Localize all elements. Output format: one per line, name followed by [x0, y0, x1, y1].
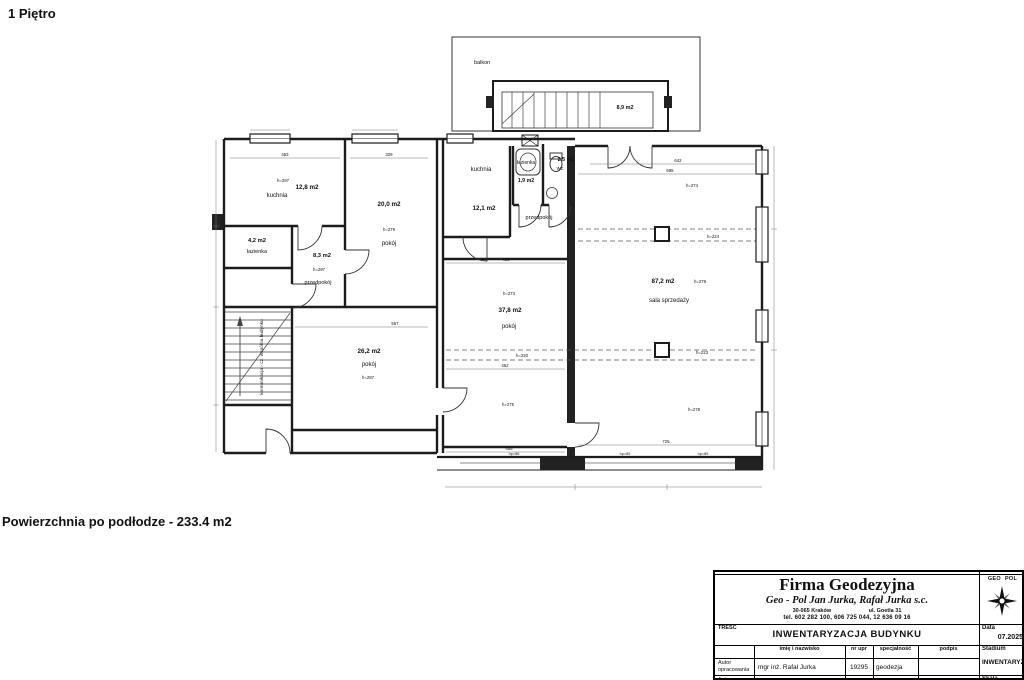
balcony-stairs: [502, 92, 600, 128]
column-header-name: imię i nazwisko: [754, 646, 845, 652]
room-height-pokoj-37-top: h=273: [503, 291, 516, 296]
window-sill-label: hp=85: [620, 452, 631, 456]
logo-text-pol: POL: [1005, 576, 1017, 582]
door-arc: [608, 146, 630, 168]
room-label-przedpokoj-2: przedpokój: [526, 215, 553, 221]
room-area-wc: 2,5 m2: [558, 157, 575, 163]
page: 1 Piętro: [0, 0, 1024, 680]
room-height-sala-band2: h=223: [696, 350, 709, 355]
vent-shaft-icon: [522, 135, 538, 146]
room-area-kuchnia-1: 12,8 m2: [295, 184, 319, 191]
room-label-kuchnia-2: kuchnia: [471, 167, 492, 173]
stadium-value: INWENTARYZACJA: [982, 659, 1024, 666]
room-label-lazienka-1: łazienka: [247, 249, 268, 255]
door-arcs: [266, 146, 652, 453]
door-arc: [443, 388, 467, 412]
date-value: 07.2025: [979, 634, 1023, 641]
dim-label: 642: [674, 158, 682, 163]
window-sill-label: hp=85: [698, 452, 709, 456]
room-area-kuchnia-2: 12,1 m2: [472, 205, 496, 212]
door-arc: [463, 237, 487, 261]
door-arc: [298, 226, 322, 250]
scale-label: Skala: [982, 676, 998, 680]
room-area-pokoj-37: 37,8 m2: [498, 307, 522, 314]
room-area-pokoj-20: 20,0 m2: [377, 201, 401, 208]
room-label-kuchnia-1: kuchnia: [267, 193, 288, 199]
column-header-specialty: specjalność: [873, 646, 918, 652]
company-phone: tel. 602 282 100, 606 725 044, 12 636 09…: [715, 615, 979, 621]
room-label-pokoj-26: pokój: [362, 362, 376, 368]
stairs-label: komunikacja - cz. wspólna budynku: [259, 319, 265, 395]
dim-label: 329: [385, 152, 393, 157]
company-address-city: 30-065 Kraków: [793, 608, 832, 614]
table-border: [715, 675, 1022, 676]
stadium-label: Stadium: [982, 646, 1006, 652]
room-height-sala-band1: h=224: [707, 234, 720, 239]
door-arc: [575, 423, 599, 447]
door-arc: [630, 146, 652, 168]
date-label: Data: [982, 625, 995, 631]
room-area-przedpokoj-1: 8,3 m2: [313, 253, 331, 259]
author-name: mgr inż. Rafał Jurka: [758, 664, 816, 671]
room-area-pokoj-26: 26,2 m2: [357, 348, 381, 355]
room-area-sala: 87,2 m2: [651, 278, 675, 285]
room-label-wc: wc: [556, 166, 564, 172]
room-height-pokoj-37-mid: h=220: [516, 353, 529, 358]
table-border: [979, 572, 980, 678]
column-header-signature: podpis: [918, 646, 979, 652]
door-arc: [345, 250, 369, 274]
author-specialty: geodezja: [876, 664, 902, 671]
compass-icon: [987, 584, 1017, 618]
room-height-sala-mid: h=278: [694, 279, 707, 284]
room-label-pokoj-20: pokój: [382, 241, 396, 247]
dim-label: 453: [281, 152, 289, 157]
room-label-lazienka-2: łazienka: [517, 160, 536, 166]
logo-text: GEOPOL: [979, 576, 1024, 582]
author-role: Autor opracowania: [718, 660, 752, 673]
door-arc: [266, 429, 290, 453]
structural-columns: [655, 227, 669, 357]
author-license-number: 19295: [845, 664, 873, 671]
window-sill-label: hp=86: [509, 452, 520, 456]
door-arc: [292, 284, 316, 308]
column-header-license: nr upr: [845, 646, 873, 652]
room-label-przedpokoj-1: przedpokój: [305, 280, 332, 286]
dim-label: 458: [502, 257, 510, 262]
dim-label: 725: [662, 439, 670, 444]
room-height-pokoj-26: h=287: [362, 375, 375, 380]
room-area-balkon: 8,9 m2: [616, 105, 633, 111]
logo-text-geo: GEO: [988, 576, 1001, 582]
company-address-street: ul. Goetla 31: [869, 608, 902, 614]
company-partners: Geo - Pol Jan Jurka, Rafał Jurka s.c.: [715, 595, 979, 606]
room-area-lazienka-2: 1,9 m2: [518, 178, 535, 184]
wall-piers: [212, 96, 762, 470]
sink-icon: [547, 188, 558, 199]
stairs: [225, 312, 291, 401]
room-label-sala: sala sprzedaży: [649, 298, 689, 304]
room-height-pokoj-37-bottom: h=275: [502, 402, 515, 407]
room-height-kuchnia-1: h=297: [277, 178, 290, 183]
company-address: 30-065 Kraków ul. Goetla 31: [715, 608, 979, 614]
room-height-pokoj-20: h=279: [383, 227, 396, 232]
room-label-balkon: balkon: [474, 60, 490, 66]
room-area-lazienka-1: 4,2 m2: [248, 238, 266, 244]
table-border: [715, 624, 1022, 625]
balcony-outline: [452, 37, 700, 131]
room-label-pokoj-37: pokój: [502, 324, 516, 330]
company-name: Firma Geodezyjna: [715, 575, 979, 595]
room-height-sala-bottom: h=278: [688, 407, 701, 412]
area-note: Powierzchnia po podłodze - 233.4 m2: [2, 514, 232, 529]
dim-label: 695: [666, 168, 674, 173]
fixtures: [516, 149, 562, 199]
dim-label: 452: [501, 363, 509, 368]
dim-label: 455: [505, 446, 513, 451]
title-block: Firma Geodezyjna Geo - Pol Jan Jurka, Ra…: [713, 570, 1024, 680]
dim-label: 567: [391, 321, 399, 326]
room-height-sala-top: h=274: [686, 183, 699, 188]
room-height-przedpokoj-1: h=297: [313, 267, 326, 272]
ceiling-dashed-lines: [446, 229, 756, 360]
drawing-title: INWENTARYZACJA BUDYNKU: [715, 629, 979, 640]
stairs-direction-arrow: [237, 316, 243, 326]
